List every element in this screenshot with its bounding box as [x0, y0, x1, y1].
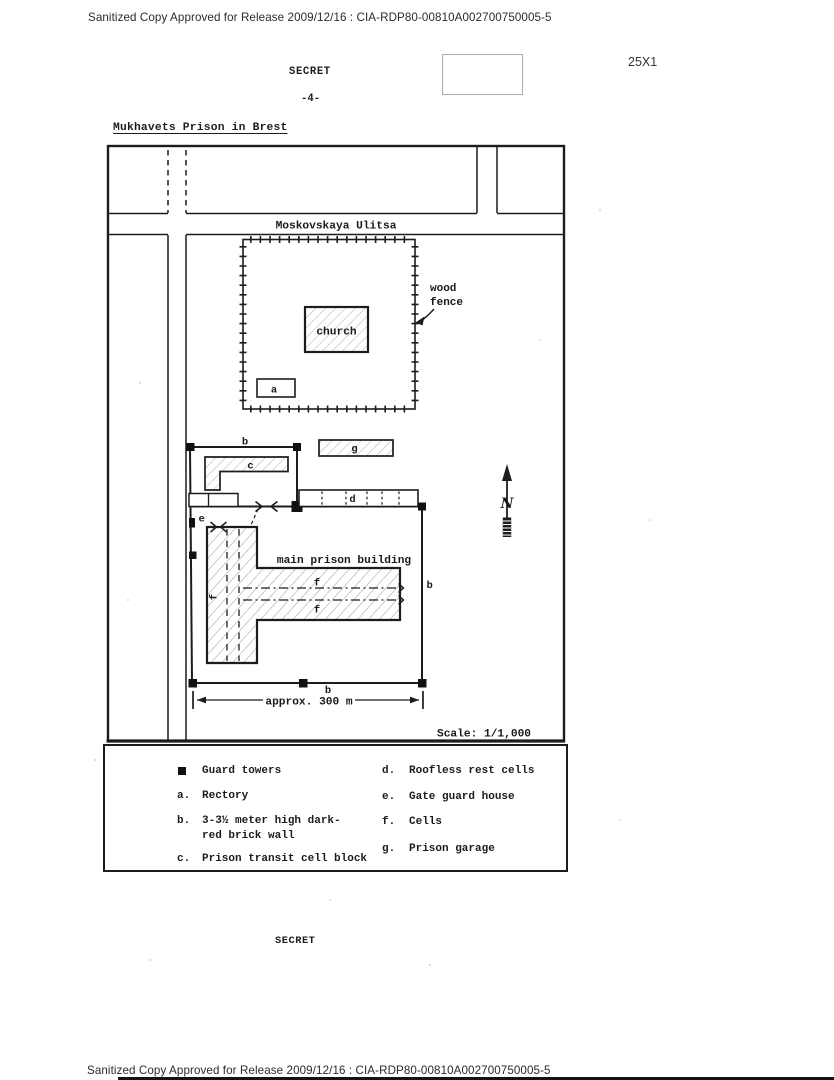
north-arrow-fletching	[503, 518, 511, 538]
gate-path-dashed	[251, 509, 258, 525]
guard-tower	[189, 679, 198, 688]
legend-key-d: d.	[382, 765, 395, 778]
guard-tower	[187, 443, 195, 451]
dimension-label: approx. 300 m	[265, 697, 353, 709]
legend-key-g: g.	[382, 843, 395, 856]
wall-label-top: b	[242, 437, 248, 449]
north-label: N	[500, 496, 515, 512]
left-street-dashed-edges	[168, 150, 186, 213]
gate-guard-house	[189, 518, 195, 528]
cells-label-lower: f	[314, 605, 320, 617]
wall-annex-building	[189, 494, 238, 507]
right-street-edges	[477, 147, 497, 213]
guard-tower-symbol	[178, 767, 186, 775]
scale-label: Scale: 1/1,000	[437, 729, 531, 741]
legend-key-b: b.	[177, 815, 190, 828]
guard-tower	[293, 443, 301, 451]
transit-cell-block: c	[189, 457, 288, 507]
rest-cells-label: d	[349, 494, 355, 506]
wood-fence-label-line1: wood	[430, 283, 456, 295]
north-arrow: N	[500, 464, 515, 537]
cells-label-upper: f	[314, 578, 320, 590]
guard-tower	[189, 552, 197, 560]
transit-block-label: c	[247, 461, 253, 473]
legend-key-a: a.	[177, 790, 190, 803]
guard-tower	[418, 503, 426, 511]
legend-item-brick-wall-line2: red brick wall	[202, 830, 294, 843]
guard-tower	[418, 679, 427, 688]
legend-item-gate-guard-house: Gate guard house	[409, 791, 515, 804]
legend-item-guard-towers: Guard towers	[202, 765, 281, 778]
prison-map: Moskovskaya Ulitsa church a wood fence	[0, 0, 834, 1080]
legend-item-garage: Prison garage	[409, 843, 495, 856]
wood-fence-annotation: wood fence	[416, 283, 464, 326]
legend-item-brick-wall-line1: 3-3½ meter high dark-	[202, 815, 341, 828]
classification-stamp-bottom: SECRET	[275, 935, 315, 947]
dimension-line: approx. 300 m	[193, 691, 423, 709]
north-arrowhead	[502, 464, 512, 481]
rest-cells-building: d	[299, 490, 418, 507]
legend: Guard towers a. Rectory b. 3-3½ meter hi…	[103, 744, 568, 872]
wall-label-right: b	[427, 580, 433, 592]
rectory-label: a	[271, 385, 278, 397]
garage-building: g	[319, 440, 393, 456]
wood-fence-label-line2: fence	[430, 297, 463, 309]
legend-key-c: c.	[177, 853, 190, 866]
legend-item-rectory: Rectory	[202, 790, 248, 803]
street-label: Moskovskaya Ulitsa	[276, 221, 397, 233]
legend-item-rest-cells: Roofless rest cells	[409, 765, 534, 778]
legend-item-cells: Cells	[409, 816, 442, 829]
church-label: church	[316, 327, 357, 339]
main-building-label: main prison building	[277, 555, 412, 567]
main-prison-building: main prison building f f f	[207, 509, 411, 663]
garage-label: g	[351, 444, 357, 456]
legend-key-e: e.	[382, 791, 395, 804]
gate-house-label: e	[199, 514, 205, 526]
cells-label-west: f	[209, 594, 221, 600]
legend-key-f: f.	[382, 816, 395, 829]
left-street-solid-edges	[168, 235, 186, 740]
wall-label-bottom: b	[325, 685, 331, 697]
legend-item-transit-block: Prison transit cell block	[202, 853, 367, 866]
document-page: Sanitized Copy Approved for Release 2009…	[0, 0, 834, 1080]
church-compound: church a	[243, 240, 415, 410]
guard-tower	[299, 679, 308, 688]
